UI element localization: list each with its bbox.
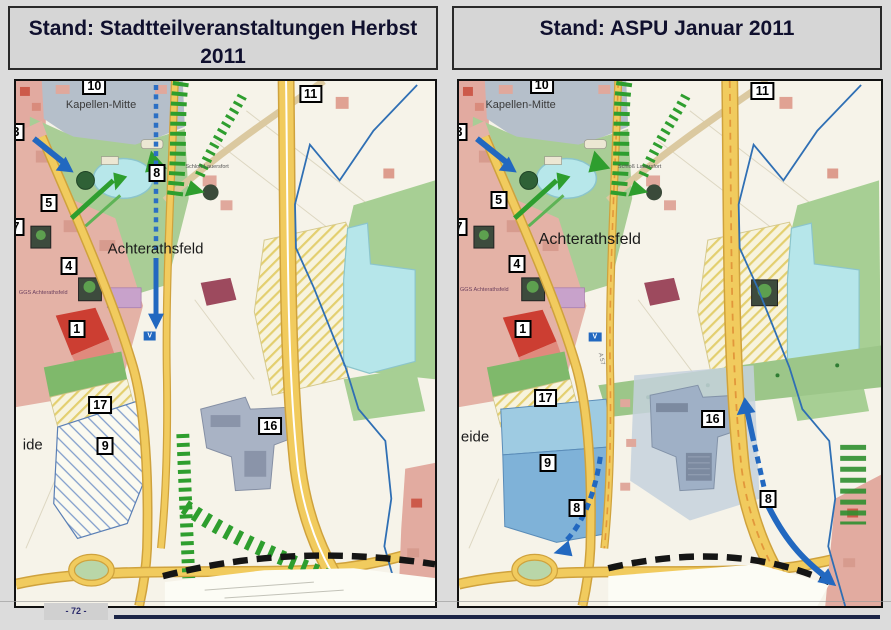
page-number: - 72 - [44,603,108,620]
map-marker-5: 5 [40,194,57,212]
map-marker-16: 16 [701,410,725,428]
map-marker-8: 8 [148,164,165,182]
map-label: Achterathsfeld [108,241,204,258]
map-marker-3: 3 [457,123,467,141]
map-marker-4: 4 [60,257,77,275]
map-marker-4: 4 [508,255,525,273]
map-marker-5: 5 [490,191,507,209]
map-marker-3: 3 [14,123,24,141]
map-label: Schloß Lauersfort [185,164,228,170]
map-marker-9: 9 [97,437,114,455]
footer-rule [114,615,880,619]
map-label: A 57 [597,353,605,366]
slide: Stand: Stadtteilveranstaltungen Herbst 2… [0,0,891,630]
map-sign: V [589,333,602,342]
map-marker-17: 17 [534,389,558,407]
map-marker-8: 8 [760,490,777,508]
map-marker-16: 16 [258,417,282,435]
map-marker-7: 7 [14,218,24,236]
map-marker-7: 7 [457,218,467,236]
map-marker-11: 11 [751,82,774,100]
left-panel-title: Stand: Stadtteilveranstaltungen Herbst 2… [8,6,438,70]
map-label: ide [23,436,43,453]
footer-hairline [0,601,891,602]
map-marker-10: 10 [82,79,106,95]
map-label: Achterathsfeld [539,231,641,249]
map-label: Schloß Lauersfort [618,164,661,170]
right-panel-title: Stand: ASPU Januar 2011 [452,6,882,70]
left-map: 101138574117916Kapellen-MitteAchterathsf… [14,79,437,608]
map-marker-10: 10 [530,79,554,94]
map-marker-1: 1 [68,320,85,338]
map-marker-17: 17 [88,396,112,414]
right-map: 1011357411798168Kapellen-MitteAchteraths… [457,79,883,608]
left-map-overlay: 101138574117916Kapellen-MitteAchterathsf… [16,81,435,606]
map-label: Kapellen-Mitte [485,99,555,111]
map-marker-1: 1 [514,320,531,338]
left-title-text: Stand: Stadtteilveranstaltungen Herbst 2… [29,17,418,68]
map-label: eide [461,429,489,446]
map-sign: V [143,332,156,341]
map-marker-8: 8 [568,499,585,517]
map-marker-9: 9 [539,454,556,472]
map-label: Kapellen-Mitte [66,99,136,111]
right-map-overlay: 1011357411798168Kapellen-MitteAchteraths… [459,81,881,606]
map-label: GGS Achterathsfeld [19,290,68,296]
map-marker-11: 11 [299,85,322,103]
right-title-text: Stand: ASPU Januar 2011 [540,17,795,40]
map-label: GGS Achterathsfeld [460,287,509,293]
